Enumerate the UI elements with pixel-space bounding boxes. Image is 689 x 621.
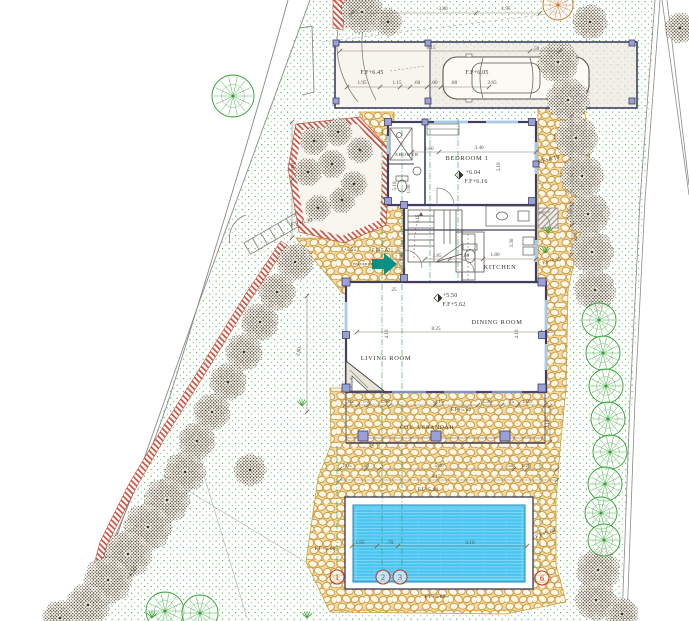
tree-green	[593, 435, 627, 469]
column	[539, 332, 546, 339]
dim-label: 1.80	[490, 252, 499, 258]
column	[343, 332, 350, 339]
dim-label: 1.40	[399, 252, 405, 261]
tree-dark	[554, 116, 599, 161]
dim-label: 8.15	[426, 45, 435, 51]
column	[401, 202, 408, 209]
dim-label: 1.60	[568, 208, 574, 217]
room-label: BEDROOM 1	[445, 155, 488, 162]
room-label: KITCHEN	[484, 264, 517, 271]
dim-label: .50	[363, 463, 370, 469]
dim-label: 1.80	[380, 399, 389, 405]
dim-label: 4.10	[514, 329, 520, 338]
dim-label: 2.10	[545, 419, 551, 428]
pool-water	[353, 505, 525, 582]
dim-label: 1.05	[522, 399, 531, 405]
dim-label: 1.00	[406, 184, 412, 193]
dim-label: 1.05	[344, 399, 353, 405]
dim-label: 1.60	[424, 146, 433, 152]
tree-green	[212, 75, 254, 117]
side-steps	[538, 208, 558, 228]
level-label: F.F+6.16	[464, 179, 487, 185]
column	[529, 198, 536, 205]
section-marker: 1	[330, 570, 344, 584]
tree-dark	[233, 453, 267, 487]
section-marker-number: 6	[540, 573, 544, 583]
level-label: +5.50	[443, 293, 458, 299]
room-label: LIVING ROOM	[361, 355, 411, 362]
tree-dark	[572, 4, 608, 40]
swimming-pool	[345, 497, 533, 589]
dim-label: 1.05	[342, 463, 351, 469]
dim-label: .50	[507, 463, 514, 469]
section-marker: 2	[376, 570, 390, 584]
dim-label: .75	[508, 399, 515, 405]
tree-dark	[373, 7, 402, 36]
column	[629, 98, 635, 104]
dim-label: 1.90	[482, 399, 491, 405]
room-label: entrance	[353, 261, 373, 266]
dim-label: 1.95	[355, 540, 364, 546]
dim-label: 1.20	[573, 232, 579, 241]
column	[529, 119, 536, 126]
room-label: DINING ROOM	[471, 319, 522, 326]
tree-green	[588, 524, 620, 556]
dim-label: 5.10	[392, 181, 398, 190]
column	[342, 278, 350, 286]
dim-label: 1.15	[415, 214, 421, 223]
dim-label: 90	[370, 442, 376, 448]
dim-label: 2.15	[434, 399, 443, 405]
dim-label: .75	[568, 189, 574, 196]
dim-label: .50	[533, 46, 540, 52]
column	[422, 119, 428, 125]
dim-label: 8.15	[431, 474, 440, 480]
column	[629, 40, 635, 46]
level-label: F.F+5.62	[442, 302, 465, 308]
section-marker-number: 2	[381, 572, 385, 582]
tree-green	[582, 303, 616, 337]
dim-label: 8.25	[431, 326, 440, 332]
level-label: F.F+5.60	[418, 487, 439, 493]
tree-green	[591, 402, 625, 436]
section-marker-number: 3	[398, 572, 402, 582]
section-marker: 3	[393, 570, 407, 584]
dim-label: 3.80	[438, 6, 447, 12]
column	[333, 98, 339, 104]
tree-green	[586, 336, 620, 370]
column	[500, 431, 510, 441]
tree-green	[589, 369, 623, 403]
level-label: F.F+5.67	[372, 249, 391, 254]
column	[333, 40, 339, 46]
dim-label: .70	[387, 540, 394, 546]
dim-label: 1.95	[501, 6, 510, 12]
level-label: F.F+6.05	[465, 70, 488, 76]
dim-label: 2.85	[487, 80, 496, 86]
site-plan-canvas: SHOWERBEDROOM 1KITCHENDINING ROOMLIVING …	[0, 0, 689, 621]
planter-shrub	[324, 118, 353, 147]
level-label: +5.55	[344, 248, 357, 253]
column	[431, 431, 441, 441]
level-label: F.F+5.60	[425, 594, 446, 600]
room-label: SHOWER	[395, 152, 419, 157]
dim-label: 1.85	[432, 253, 441, 259]
column	[385, 119, 392, 126]
column	[342, 384, 350, 392]
level-label: F.F+5.60	[315, 546, 336, 552]
column	[385, 198, 392, 205]
dim-label: 3.30	[509, 238, 515, 247]
dim-label: 1.00	[428, 80, 437, 86]
dim-label: 4.10	[384, 329, 390, 338]
tree-dark	[560, 154, 605, 199]
section-marker-number: 1	[335, 572, 339, 582]
column	[538, 278, 546, 286]
dim-label: .60	[414, 80, 421, 86]
dim-label: 1.95	[357, 80, 366, 86]
dim-label: 5.40	[434, 463, 443, 469]
dim-label: 3.10	[496, 162, 502, 171]
column	[401, 275, 408, 282]
dim-label: .70	[363, 399, 370, 405]
column	[425, 98, 431, 104]
dim-label: 25	[547, 329, 553, 335]
column	[538, 384, 546, 392]
dim-label: 6.10	[465, 540, 474, 546]
tree-green	[588, 467, 622, 501]
column	[358, 431, 368, 441]
dim-label: 3.40	[474, 145, 483, 151]
dim-label: 25	[391, 287, 397, 293]
level-label: +6.04	[466, 170, 481, 176]
site-plan-page: SHOWERBEDROOM 1KITCHENDINING ROOMLIVING …	[0, 0, 689, 621]
section-marker: 6	[535, 571, 549, 585]
tree-dark	[665, 13, 689, 44]
dim-label: 1.15	[392, 80, 401, 86]
level-label: F.F+5.52	[451, 407, 472, 413]
dim-label: .80	[451, 80, 458, 86]
room-label: COV. VERANDAH	[400, 425, 454, 431]
dim-label: 1.20	[521, 463, 530, 469]
level-label: F.F+6.45	[360, 70, 383, 76]
dim-label: .80	[463, 253, 470, 259]
